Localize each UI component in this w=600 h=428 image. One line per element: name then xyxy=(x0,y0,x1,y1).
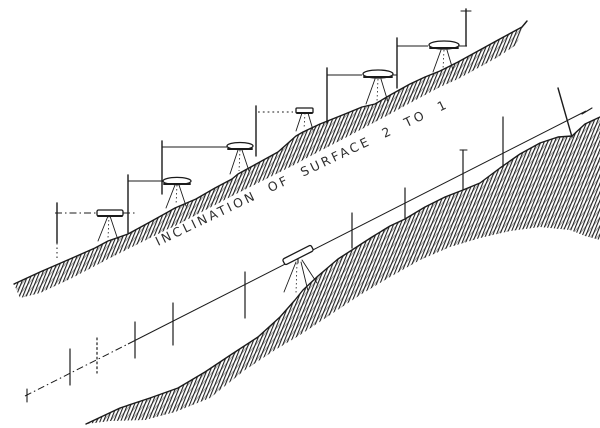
lower-sight-line-dashdot xyxy=(25,344,128,396)
end-staff xyxy=(558,88,572,137)
surveying-diagram: INCLINATION OF SURFACE 2 TO 1 xyxy=(0,0,600,428)
upper-slope: INCLINATION OF SURFACE 2 TO 1 xyxy=(14,9,527,298)
engraving-canvas: INCLINATION OF SURFACE 2 TO 1 xyxy=(0,0,600,428)
lower-slope-hatch xyxy=(86,117,600,424)
level-instrument-4 xyxy=(296,108,313,131)
level-instrument-1 xyxy=(97,210,123,241)
lower-sight-line-end-tick xyxy=(582,108,592,114)
upper-slope-hatch xyxy=(14,21,527,298)
